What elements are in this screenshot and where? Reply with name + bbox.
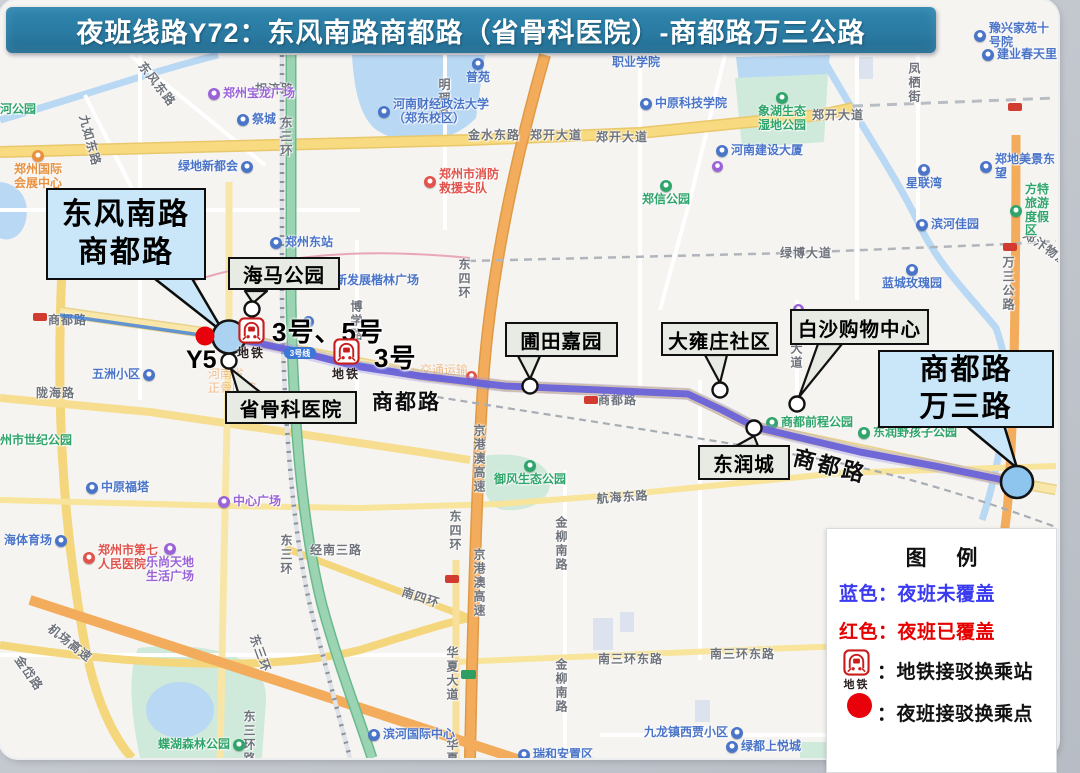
legend-item-red: 红色：夜班已覆盖 (839, 617, 995, 644)
metro-transfer-station: 地铁 (332, 338, 360, 382)
night-bus-transfer-dot-icon (847, 693, 872, 718)
end-terminus-callout: 商都路 万三路 (878, 350, 1054, 428)
legend-title: 图 例 (827, 542, 1056, 572)
metro-logo-icon (843, 649, 870, 676)
metro-line-number-label: 3号、5号 (272, 312, 384, 349)
metro-caption: 地铁 (332, 365, 360, 382)
screenshot-stage: 东风东路九如东路相济路东三环明理路金水东路郑开大道郑开大道郑开大道凤栖街博学路绿… (0, 0, 1080, 773)
stop-callout: 圃田嘉园 (505, 322, 618, 357)
end-callout-line1: 商都路 (919, 352, 1012, 389)
route-title: 夜班线路Y72：东风南路商都路（省骨科医院）-商都路万三公路 (76, 11, 865, 50)
legend-item-dot: ：夜班接驳换乘点 (877, 699, 1033, 726)
stop-callout: 大雍庄社区 (661, 322, 778, 356)
night-bus-y5-label: Y5 (186, 346, 217, 375)
metro-logo-icon (333, 338, 360, 365)
metro-transfer-icon: 地铁 (843, 649, 870, 692)
legend-panel: 图 例 蓝色：夜班未覆盖 红色：夜班已覆盖 地铁 ：地铁接驳换乘站 ：夜班接驳换… (826, 528, 1057, 773)
legend-item-blue: 蓝色：夜班未覆盖 (839, 579, 995, 606)
legend-item-metro: ：地铁接驳换乘站 (877, 657, 1033, 684)
stop-callout: 海马公园 (228, 257, 340, 290)
end-callout-line2: 万三路 (919, 389, 1012, 426)
stop-callout: 东润城 (698, 445, 790, 480)
start-callout-line2: 商都路 (78, 234, 174, 272)
metro-transfer-station: 地铁 (237, 317, 265, 361)
metro-caption: 地铁 (844, 676, 870, 692)
stop-callout: 省骨科医院 (225, 391, 357, 424)
start-terminus-callout: 东风南路 商都路 (46, 188, 206, 280)
stop-callout: 白沙购物中心 (790, 309, 929, 345)
title-banner: 夜班线路Y72：东风南路商都路（省骨科医院）-商都路万三公路 (6, 7, 936, 53)
metro-logo-icon (238, 317, 265, 344)
metro-line-number-label: 3号 (374, 338, 416, 375)
metro-caption: 地铁 (237, 344, 265, 361)
start-callout-line1: 东风南路 (62, 196, 190, 234)
